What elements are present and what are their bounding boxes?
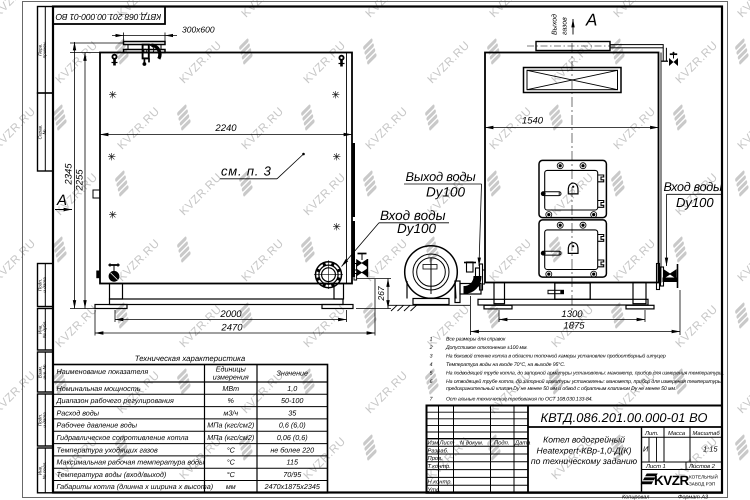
svg-text:KVZR.RU: KVZR.RU: [0, 0, 38, 20]
svg-text:Техническая характеристика: Техническая характеристика: [135, 354, 246, 363]
svg-text:Котел водогрейный: Котел водогрейный: [543, 435, 625, 445]
svg-text:Подп.: Подп.: [494, 440, 509, 447]
svg-text:Лист 1: Лист 1: [645, 464, 666, 470]
svg-text:300х600: 300х600: [182, 25, 215, 35]
svg-text:Масса: Масса: [668, 431, 686, 437]
svg-text:KVZR.RU: KVZR.RU: [240, 237, 287, 284]
svg-text:Листов 2: Листов 2: [688, 463, 716, 470]
svg-text:Выход воды: Выход воды: [406, 169, 477, 184]
svg-text:Ост альные технические требова: Ост альные технические требования по ОСТ…: [446, 397, 593, 403]
svg-text:KVZR.RU: KVZR.RU: [364, 105, 411, 152]
svg-text:KVZR.RU: KVZR.RU: [116, 105, 163, 152]
svg-text:35: 35: [288, 408, 297, 417]
svg-text:Масштаб: Масштаб: [693, 430, 721, 437]
svg-text:70/95: 70/95: [283, 470, 302, 479]
svg-text:Лист: Лист: [439, 441, 455, 447]
svg-text:предохранительный клапан Dу н: предохранительный клапан Dу не менее 50 …: [446, 386, 676, 392]
svg-text:Разраб.: Разраб.: [428, 447, 449, 454]
svg-text:KVZR.RU: KVZR.RU: [550, 171, 597, 218]
svg-text:№ подл.: № подл.: [42, 462, 47, 480]
svg-text:Н.контр.: Н.контр.: [428, 480, 453, 486]
svg-text:%: %: [228, 396, 235, 405]
svg-text:Формат А3: Формат А3: [678, 495, 709, 500]
svg-text:KVZR.RU: KVZR.RU: [364, 237, 411, 284]
svg-text:№ дубл.: № дубл.: [42, 320, 47, 338]
svg-text:ЗАВОД РЭП: ЗАВОД РЭП: [689, 482, 715, 487]
svg-text:м3/ч: м3/ч: [223, 408, 238, 417]
svg-text:и дата: и дата: [42, 412, 47, 428]
svg-text:Dy100: Dy100: [426, 185, 466, 200]
svg-text:Наименование показателя: Наименование показателя: [57, 367, 149, 376]
svg-text:KVZR.RU: KVZR.RU: [674, 303, 721, 350]
svg-text:Heatexpert-КВр-1,0-Д(К): Heatexpert-КВр-1,0-Д(К): [537, 446, 632, 456]
svg-text:1:15: 1:15: [703, 445, 718, 454]
svg-text:Температура воды на входе 70°: Температура воды на входе 70°С, на выход…: [446, 362, 565, 368]
svg-text:KVZR.RU: KVZR.RU: [0, 369, 38, 416]
svg-text:Лит.: Лит.: [644, 431, 659, 437]
svg-text:Максимальная рабочая температу: Максимальная рабочая температура воды: [57, 458, 205, 467]
svg-text:°С: °С: [227, 458, 236, 467]
svg-text:На отводящей трубе котла, до з: На отводящей трубе котла, до запорной ар…: [446, 379, 723, 385]
svg-text:Температура воды (вход/выход): Температура воды (вход/выход): [57, 470, 167, 479]
svg-text:А: А: [56, 192, 67, 209]
svg-text:Изм: Изм: [428, 441, 439, 447]
svg-text:2255: 2255: [75, 169, 86, 192]
svg-text:KVZR.RU: KVZR.RU: [488, 0, 535, 20]
svg-text:KVZR.RU: KVZR.RU: [240, 0, 287, 20]
svg-text:КВТД.086.201.00.000-01 ВО: КВТД.086.201.00.000-01 ВО: [540, 410, 707, 425]
svg-text:KVZR.RU: KVZR.RU: [488, 237, 535, 284]
svg-text:°С: °С: [227, 445, 236, 454]
svg-text:Dy100: Dy100: [397, 221, 437, 236]
svg-text:КОТЕЛЬНЫЙ: КОТЕЛЬНЫЙ: [689, 474, 718, 480]
svg-text:KVZR.RU: KVZR.RU: [426, 39, 473, 86]
svg-text:Все размеры для справок: Все размеры для справок: [446, 337, 506, 343]
svg-text:3: 3: [430, 354, 433, 360]
svg-text:7: 7: [430, 397, 434, 403]
svg-text:267: 267: [376, 286, 386, 301]
svg-text:Пров.: Пров.: [428, 456, 443, 462]
svg-text:Утв.: Утв.: [427, 487, 441, 493]
svg-text:KVZR.RU: KVZR.RU: [612, 237, 659, 284]
svg-text:0,06 (0,6): 0,06 (0,6): [277, 433, 308, 442]
svg-text:°С: °С: [227, 470, 236, 479]
svg-text:KVZR.RU: KVZR.RU: [178, 171, 225, 218]
svg-text:2240: 2240: [214, 123, 237, 134]
svg-text:Диапазон рабочего регулировани: Диапазон рабочего регулирования: [56, 396, 175, 405]
svg-text:KVZR.RU: KVZR.RU: [116, 237, 163, 284]
svg-text:Номинальная мощность: Номинальная мощность: [57, 384, 141, 393]
svg-text:КВТД.068.201.00.000-01 ВО: КВТД.068.201.00.000-01 ВО: [55, 12, 161, 22]
svg-text:А: А: [585, 11, 597, 30]
svg-text:2000: 2000: [219, 309, 242, 320]
svg-text:2345: 2345: [64, 163, 75, 186]
svg-text:2470х1875х2345: 2470х1875х2345: [264, 482, 321, 491]
svg-text:KVZR.RU: KVZR.RU: [736, 369, 750, 416]
svg-text:KVZR.RU: KVZR.RU: [612, 0, 659, 20]
svg-text:Вход воды: Вход воды: [664, 180, 723, 194]
svg-text:KVZR.RU: KVZR.RU: [612, 105, 659, 152]
svg-text:KVZR.RU: KVZR.RU: [364, 369, 411, 416]
svg-text:и дата: и дата: [42, 277, 47, 293]
svg-text:KVZR.RU: KVZR.RU: [178, 303, 225, 350]
svg-text:мм: мм: [226, 482, 236, 491]
svg-text:KVZR.RU: KVZR.RU: [364, 0, 411, 20]
svg-text:Допустимое отклонение ±100 мм: Допустимое отклонение ±100 мм.: [445, 345, 528, 351]
svg-text:1: 1: [430, 337, 433, 343]
svg-text:Dy100: Dy100: [676, 195, 714, 210]
svg-text:Дата: Дата: [514, 441, 531, 447]
svg-text:KVZR.RU: KVZR.RU: [736, 0, 750, 20]
svg-text:4: 4: [430, 362, 433, 368]
svg-text:KVZR.RU: KVZR.RU: [54, 303, 101, 350]
svg-text:KVZR.RU: KVZR.RU: [240, 105, 287, 152]
svg-text:Габариты котла (длинна х ширин: Габариты котла (длинна х ширина х высота…: [57, 482, 214, 491]
svg-text:МПа (кгс/см2): МПа (кгс/см2): [207, 433, 254, 442]
svg-text:Выход: Выход: [551, 14, 559, 35]
svg-text:0,6 (6,0): 0,6 (6,0): [279, 421, 306, 430]
svg-text:не более 220: не более 220: [270, 445, 314, 454]
svg-text:50-100: 50-100: [281, 396, 303, 405]
svg-text:KVZR.RU: KVZR.RU: [674, 39, 721, 86]
svg-text:см. п. 3: см. п. 3: [221, 164, 272, 179]
svg-text:115: 115: [287, 458, 299, 467]
svg-text:измерения: измерения: [213, 373, 249, 382]
svg-text:газов: газов: [562, 17, 569, 35]
svg-text:1300: 1300: [561, 309, 583, 320]
svg-text:6: 6: [430, 379, 433, 385]
svg-text:2470: 2470: [220, 323, 243, 334]
svg-text:Рабочее давление воды: Рабочее давление воды: [57, 421, 138, 430]
svg-text:1,0: 1,0: [287, 384, 297, 393]
svg-text:KVZR.RU: KVZR.RU: [302, 171, 349, 218]
svg-text:KVZR.RU: KVZR.RU: [302, 303, 349, 350]
svg-text:1875: 1875: [563, 321, 585, 332]
svg-text:5: 5: [430, 371, 433, 377]
svg-text:Т.контр.: Т.контр.: [428, 464, 451, 470]
svg-text:И: И: [643, 444, 649, 453]
svg-text:KVZR.RU: KVZR.RU: [54, 39, 101, 86]
svg-text:KVZR.RU: KVZR.RU: [302, 435, 349, 482]
svg-text:KVZR.RU: KVZR.RU: [736, 237, 750, 284]
svg-text:1540: 1540: [522, 116, 544, 127]
svg-text:KVZR.RU: KVZR.RU: [736, 105, 750, 152]
svg-text:На подводящей трубе котла, д: На подводящей трубе котла, до запорной а…: [446, 371, 724, 377]
svg-text:Расход воды: Расход воды: [57, 408, 100, 417]
svg-text:KVZR.RU: KVZR.RU: [488, 105, 535, 152]
svg-text:Температура уходящих газов: Температура уходящих газов: [57, 445, 159, 454]
svg-text:KVZR.RU: KVZR.RU: [550, 39, 597, 86]
svg-text:KVZR.RU: KVZR.RU: [0, 237, 38, 284]
svg-text:KVZR.RU: KVZR.RU: [178, 39, 225, 86]
svg-text:примен.: примен.: [42, 41, 47, 58]
svg-text:Значение: Значение: [276, 369, 308, 378]
svg-text:Копировал: Копировал: [622, 495, 649, 500]
svg-text:№: №: [42, 129, 47, 134]
svg-text:2: 2: [429, 345, 433, 351]
svg-text:N докум.: N докум.: [460, 440, 483, 447]
svg-text:KVZR.RU: KVZR.RU: [426, 303, 473, 350]
svg-text:МПа (кгс/см2): МПа (кгс/см2): [207, 421, 254, 430]
svg-text:МВт: МВт: [222, 384, 239, 393]
svg-text:инв. №: инв. №: [42, 364, 47, 379]
svg-text:KVZR: KVZR: [654, 473, 690, 488]
svg-text:KVZR.RU: KVZR.RU: [0, 105, 38, 152]
svg-text:по техническому заданию: по техническому заданию: [531, 456, 638, 466]
svg-text:На боковой стенке котла в обла: На боковой стенке котла в области топочн…: [446, 354, 666, 360]
svg-text:Гидравлическое сопротивление к: Гидравлическое сопротивление котла: [57, 433, 189, 442]
